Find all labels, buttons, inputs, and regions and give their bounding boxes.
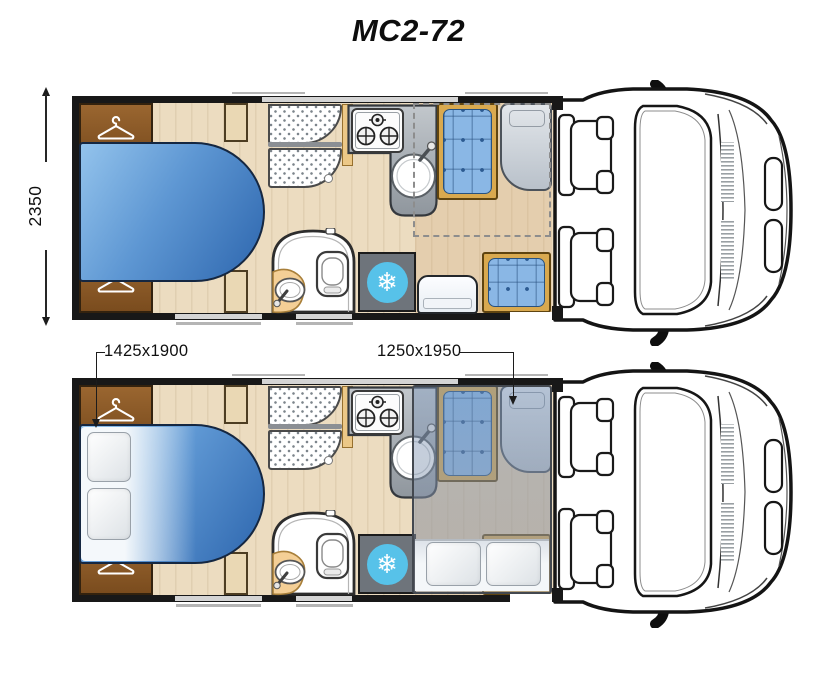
pillow xyxy=(87,432,131,482)
dinette-table xyxy=(417,275,478,314)
entry-door-gap xyxy=(510,594,552,603)
bathroom-door-hinge xyxy=(326,510,335,516)
drop-down-bed-outline xyxy=(413,103,551,237)
window-strip xyxy=(296,596,352,601)
passenger-seat xyxy=(559,227,613,307)
leader-arrowhead xyxy=(509,396,517,405)
awning-rail xyxy=(232,92,305,95)
gas-hob xyxy=(352,109,403,152)
bathroom-door-hinge xyxy=(326,228,335,234)
shower-door xyxy=(268,424,342,429)
window-strip xyxy=(296,314,352,319)
window-strip xyxy=(175,596,262,601)
snowflake-icon: ❄ xyxy=(376,269,398,295)
skirt-rail xyxy=(176,604,261,607)
shower-drain xyxy=(324,456,333,465)
skirt-rail xyxy=(176,322,261,325)
leader-line xyxy=(460,352,514,354)
freezer-badge: ❄ xyxy=(367,262,408,303)
wall-stub xyxy=(552,306,563,320)
bench-cushion xyxy=(488,258,545,307)
refrigerator: ❄ xyxy=(358,534,416,594)
hood-vent xyxy=(721,220,734,280)
awning-rail xyxy=(465,92,548,95)
pillow xyxy=(87,488,131,540)
rear-bed-size-label: 1425x1900 xyxy=(104,342,188,361)
hood-vent xyxy=(721,424,734,484)
skirt-rail xyxy=(296,322,353,325)
rear-island-bed xyxy=(79,142,265,282)
leader-line xyxy=(513,352,515,398)
wall-stub xyxy=(552,378,563,392)
window-strip xyxy=(175,314,262,319)
floorplan-day: ❄ xyxy=(0,88,817,350)
leader-line xyxy=(96,353,98,421)
drop-down-bed-size-label: 1250x1950 xyxy=(377,342,461,361)
cab-top-view xyxy=(553,80,797,346)
hood-vent xyxy=(721,142,734,202)
passenger-seat xyxy=(559,509,613,589)
partition-wall xyxy=(224,552,248,595)
wall-stub xyxy=(552,588,563,602)
partition-wall xyxy=(224,385,248,424)
skirt-rail xyxy=(296,604,353,607)
pillow xyxy=(486,542,541,586)
grille-slot xyxy=(765,220,782,272)
window-strip xyxy=(262,97,458,102)
entry-door-gap xyxy=(510,312,552,321)
partition-wall xyxy=(224,270,248,313)
awning-rail xyxy=(232,374,305,377)
snowflake-icon: ❄ xyxy=(376,551,398,577)
windshield xyxy=(635,388,711,596)
cab-top-view xyxy=(553,362,797,628)
wall-stub xyxy=(552,96,563,110)
drop-down-bed xyxy=(412,385,552,594)
grille-slot xyxy=(765,440,782,492)
shower-drain xyxy=(324,174,333,183)
windshield xyxy=(635,106,711,314)
driver-seat xyxy=(559,397,613,477)
window-strip xyxy=(262,379,458,384)
gas-hob xyxy=(352,391,403,434)
pillow xyxy=(426,542,481,586)
leader-arrowhead xyxy=(92,419,100,428)
floorplan-night: ❄ xyxy=(0,370,817,632)
partition-wall xyxy=(224,103,248,142)
hood-vent xyxy=(721,502,734,562)
awning-rail xyxy=(465,374,548,377)
driver-seat xyxy=(559,115,613,195)
grille-slot xyxy=(765,502,782,554)
page-title: MC2-72 xyxy=(0,13,817,49)
bathroom xyxy=(270,228,357,314)
freezer-badge: ❄ xyxy=(367,544,408,585)
grille-slot xyxy=(765,158,782,210)
refrigerator: ❄ xyxy=(358,252,416,312)
shower-door xyxy=(268,142,342,147)
dinette-bench-side xyxy=(482,252,551,313)
bathroom xyxy=(270,510,357,596)
